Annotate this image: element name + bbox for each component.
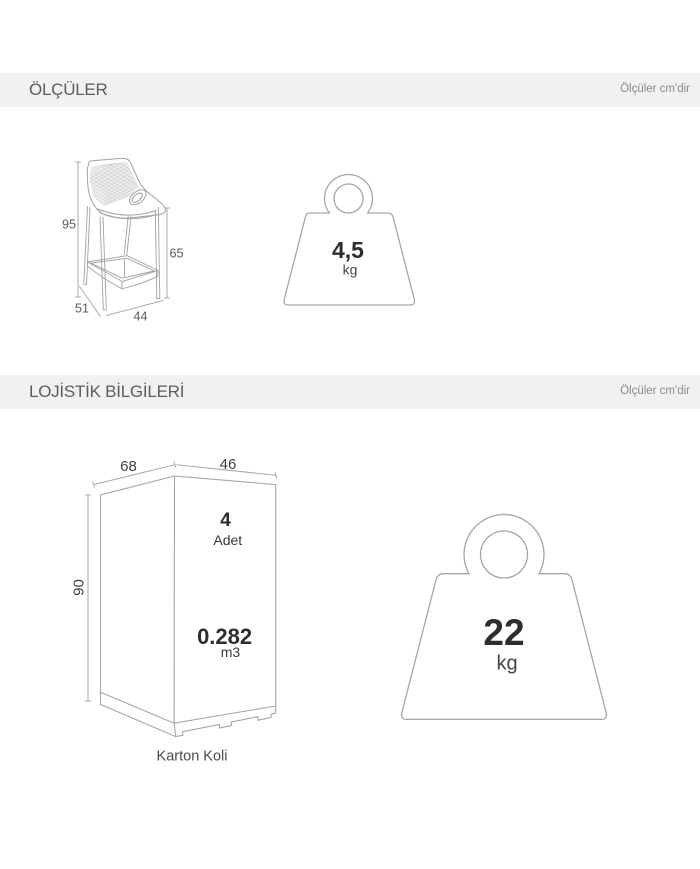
svg-text:51: 51 — [75, 302, 89, 316]
svg-text:kg: kg — [343, 262, 358, 278]
svg-text:kg: kg — [496, 653, 517, 675]
svg-text:4: 4 — [220, 510, 231, 531]
svg-text:95: 95 — [62, 218, 76, 232]
svg-text:m3: m3 — [221, 644, 241, 660]
svg-text:4,5: 4,5 — [332, 237, 364, 263]
svg-text:Karton Koli: Karton Koli — [157, 749, 228, 765]
svg-text:90: 90 — [70, 579, 87, 596]
svg-text:46: 46 — [220, 456, 237, 473]
svg-text:44: 44 — [134, 310, 148, 324]
svg-text:22: 22 — [483, 612, 524, 653]
svg-text:65: 65 — [170, 247, 184, 261]
svg-text:Adet: Adet — [213, 532, 242, 548]
svg-text:68: 68 — [120, 458, 137, 475]
